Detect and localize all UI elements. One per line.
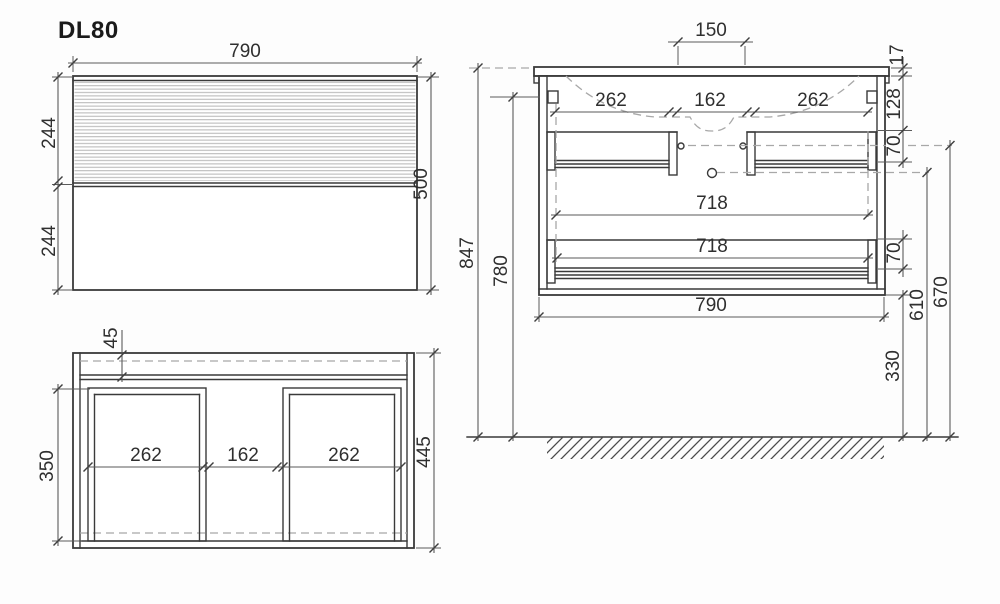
dim-drawer-front-height: 70 xyxy=(884,135,905,156)
dim-plan-right-width: 262 xyxy=(328,445,360,466)
plan-view: 45 350 445 262 162 262 xyxy=(37,327,441,553)
dim-height-total: 847 xyxy=(457,237,478,269)
dim-front-width: 790 xyxy=(229,41,261,62)
dim-plan-center-width: 162 xyxy=(227,445,259,466)
dim-plan-top-inset: 45 xyxy=(101,327,122,348)
model-title: DL80 xyxy=(58,17,119,44)
dim-side-right-width: 262 xyxy=(797,90,829,111)
dim-height-underside: 330 xyxy=(883,350,904,382)
dim-inner-width-lower: 718 xyxy=(696,236,728,257)
dim-front-upper-height: 244 xyxy=(39,117,60,149)
dim-top-thickness: 17 xyxy=(887,44,908,65)
dim-cabinet-width: 790 xyxy=(695,295,727,316)
floor-hatch xyxy=(547,437,884,459)
dim-plan-inner-depth: 350 xyxy=(37,450,58,482)
dim-faucet-span: 150 xyxy=(695,20,727,41)
technical-drawing-page: DL80 790 244 244 500 xyxy=(0,0,1000,604)
dim-apron-height: 128 xyxy=(884,88,905,120)
dim-lower-drawer-height: 70 xyxy=(884,242,905,263)
dim-height-drain: 610 xyxy=(907,289,928,321)
dim-inner-width-upper: 718 xyxy=(696,193,728,214)
dim-front-lower-height: 244 xyxy=(39,225,60,257)
fluted-front-panel xyxy=(75,82,416,181)
dim-plan-total-depth: 445 xyxy=(414,436,435,468)
dim-plan-left-width: 262 xyxy=(130,445,162,466)
dim-height-knob: 670 xyxy=(931,276,952,308)
dim-side-left-width: 262 xyxy=(595,90,627,111)
front-view: DL80 790 244 244 500 xyxy=(39,17,439,295)
dim-front-total-height: 500 xyxy=(411,168,432,200)
dim-side-center-width: 162 xyxy=(694,90,726,111)
section-view: 150 262 162 262 718 718 790 847 xyxy=(457,20,958,459)
drawing-canvas: DL80 790 244 244 500 xyxy=(0,0,1000,604)
dim-height-mount: 780 xyxy=(491,255,512,287)
countertop xyxy=(534,67,889,76)
